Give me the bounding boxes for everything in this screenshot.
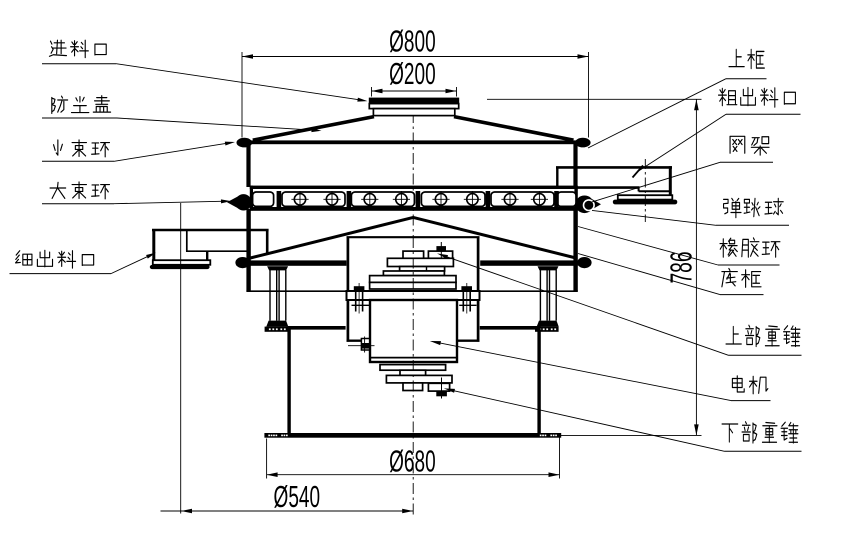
svg-text:Ø680: Ø680 [389, 444, 436, 478]
svg-text:Ø800: Ø800 [389, 24, 436, 58]
svg-text:Ø540: Ø540 [274, 480, 321, 514]
svg-text:786: 786 [665, 252, 699, 284]
svg-text:Ø200: Ø200 [389, 57, 436, 91]
